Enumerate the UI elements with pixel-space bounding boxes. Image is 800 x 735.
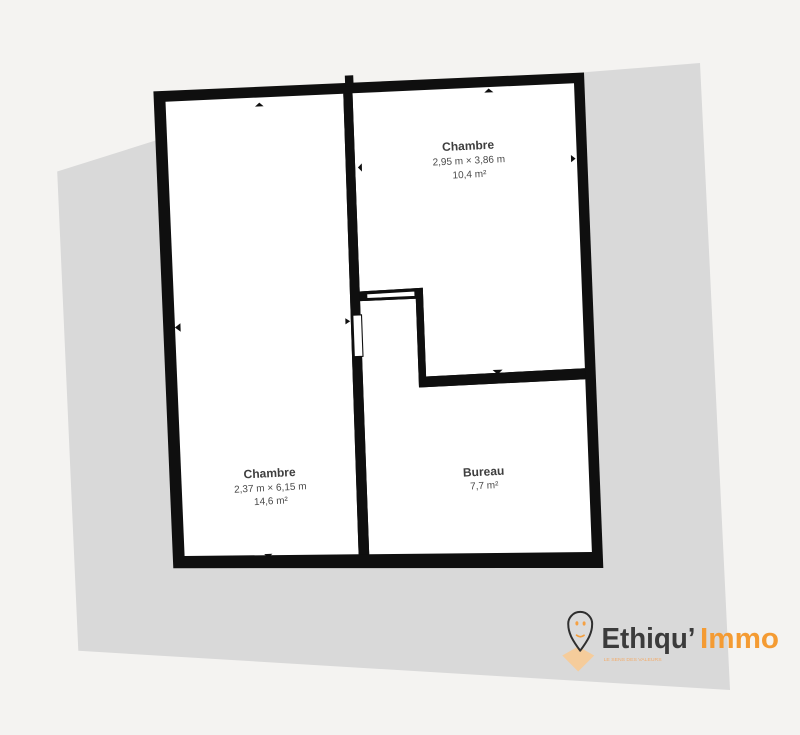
svg-text:14,6 m²: 14,6 m² bbox=[254, 495, 289, 508]
svg-text:Ethiqu’: Ethiqu’ bbox=[602, 623, 696, 655]
svg-text:Immo: Immo bbox=[700, 623, 779, 655]
svg-text:Bureau: Bureau bbox=[463, 464, 505, 480]
svg-text:Chambre: Chambre bbox=[442, 138, 495, 154]
svg-text:7,7 m²: 7,7 m² bbox=[470, 480, 499, 492]
svg-text:Chambre: Chambre bbox=[243, 465, 296, 481]
svg-text:LE SENS DES VALEURS: LE SENS DES VALEURS bbox=[604, 657, 662, 662]
svg-text:10,4 m²: 10,4 m² bbox=[452, 169, 487, 182]
